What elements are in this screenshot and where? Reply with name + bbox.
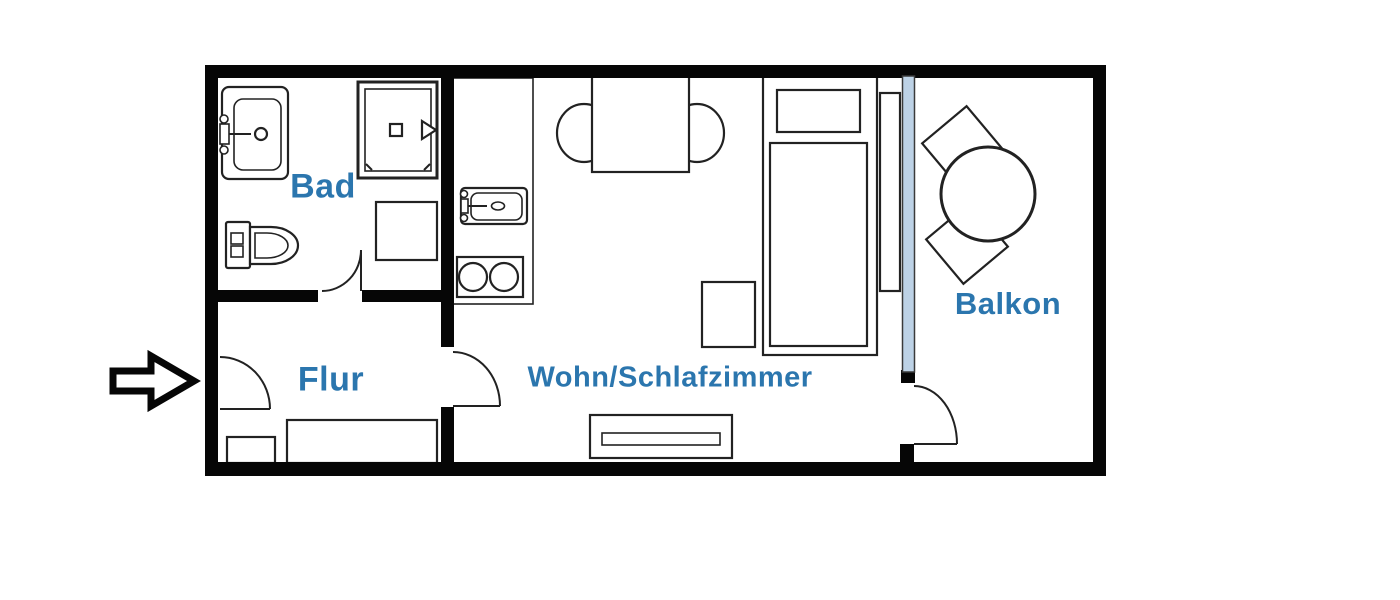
bathroom-door bbox=[322, 250, 361, 291]
balcony-window bbox=[903, 76, 915, 372]
pillow-icon bbox=[777, 90, 860, 132]
balcony-door bbox=[914, 386, 957, 444]
stove-icon bbox=[457, 257, 523, 297]
hall-cabinet-icon bbox=[287, 420, 437, 463]
washbasin-icon bbox=[220, 87, 288, 179]
room-label-balkon: Balkon bbox=[955, 286, 1061, 322]
balcony-table-icon bbox=[941, 147, 1035, 241]
shoe-cabinet-icon bbox=[227, 437, 275, 463]
room-label-flur: Flur bbox=[298, 361, 364, 400]
toilet-icon bbox=[226, 222, 298, 268]
floor-plan-drawing bbox=[0, 0, 1400, 600]
entrance-arrow-icon bbox=[113, 356, 194, 406]
room-label-wohn-schlafzimmer: Wohn/Schlafzimmer bbox=[527, 362, 812, 395]
dining-table-icon bbox=[592, 74, 689, 172]
nightstand-icon bbox=[702, 282, 755, 347]
washing-machine-icon bbox=[376, 202, 437, 260]
room-label-bad: Bad bbox=[290, 168, 356, 207]
entrance-door bbox=[220, 357, 270, 409]
bed-icon bbox=[763, 74, 877, 355]
wardrobe-icon bbox=[880, 93, 900, 291]
kitchen-sink-icon bbox=[461, 188, 528, 224]
floor-plan-canvas: Bad Flur Wohn/Schlafzimmer Balkon bbox=[0, 0, 1400, 600]
sideboard-icon bbox=[590, 415, 732, 458]
shower-icon bbox=[358, 82, 437, 178]
room-door bbox=[453, 352, 500, 406]
